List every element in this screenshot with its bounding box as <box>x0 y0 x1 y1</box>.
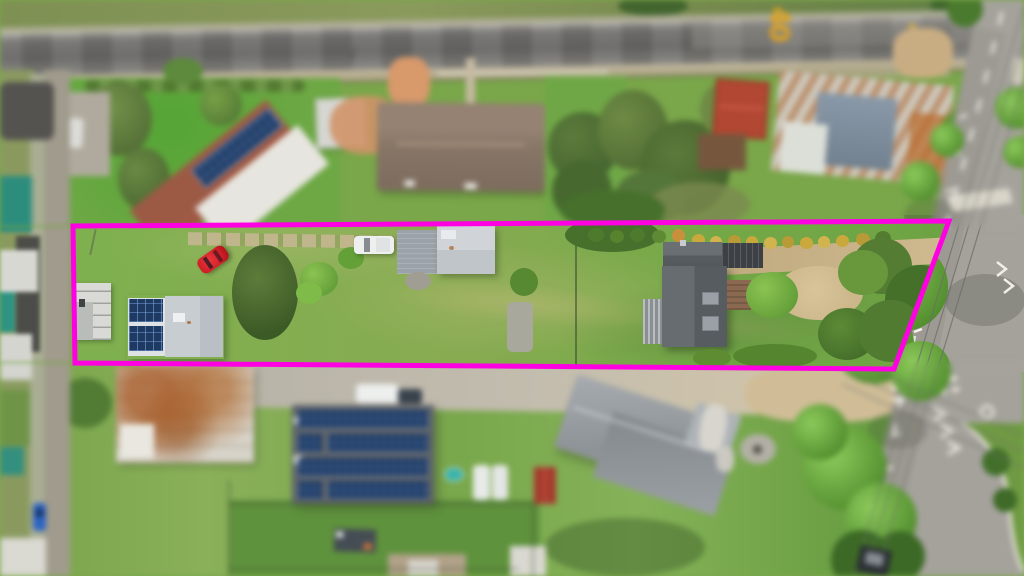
shed-solar-panels <box>129 299 163 322</box>
fence-line <box>575 228 577 366</box>
house-main-gable <box>662 266 727 347</box>
white-ute <box>354 236 394 254</box>
car-roof <box>864 551 884 566</box>
gold-shrub <box>836 235 849 247</box>
shed-metal-roof <box>165 296 223 357</box>
boundary-trees <box>838 250 888 295</box>
house-north-gable <box>663 242 722 269</box>
top-scene: 40 <box>0 0 1024 227</box>
cottage-door <box>79 299 85 307</box>
ute-tray <box>376 238 390 252</box>
pergola <box>643 299 662 344</box>
red-car <box>195 243 231 275</box>
cottage-wing <box>75 303 93 340</box>
ute-cab <box>364 238 370 252</box>
lot-tree <box>746 272 798 318</box>
lot-tree <box>232 245 298 340</box>
hedge-row <box>693 349 731 367</box>
rust-spot <box>187 321 191 324</box>
lot-shrub <box>296 282 322 304</box>
shed-solar-panels <box>129 326 163 351</box>
chimney <box>680 240 686 246</box>
roof-vent <box>173 313 185 322</box>
car-on-road <box>856 545 893 576</box>
concrete-pad <box>405 272 431 290</box>
gold-shrub <box>800 237 813 249</box>
car-rear-window <box>213 250 224 263</box>
left-cottage <box>75 283 111 340</box>
roof-box <box>702 292 719 305</box>
rust-spot <box>449 246 454 250</box>
clothesline <box>89 229 96 255</box>
solar-shed <box>127 295 224 359</box>
gold-shrub <box>818 236 830 248</box>
garage-wing <box>397 230 437 274</box>
aerial-photo: 40 <box>0 0 1024 576</box>
hedge-row <box>733 344 817 368</box>
roof-box <box>702 316 719 331</box>
hedge-shrub <box>610 230 624 243</box>
concrete-slab <box>507 302 533 352</box>
left-scene <box>0 227 76 362</box>
lot-shrub <box>510 268 538 296</box>
carport-roof <box>722 243 763 268</box>
bottom-scene <box>0 362 1024 576</box>
car-windshield <box>203 256 214 269</box>
grey-garage <box>397 226 497 276</box>
gold-shrub <box>782 236 794 248</box>
hedge-shrub <box>588 228 604 242</box>
garage-skylight <box>441 230 456 239</box>
